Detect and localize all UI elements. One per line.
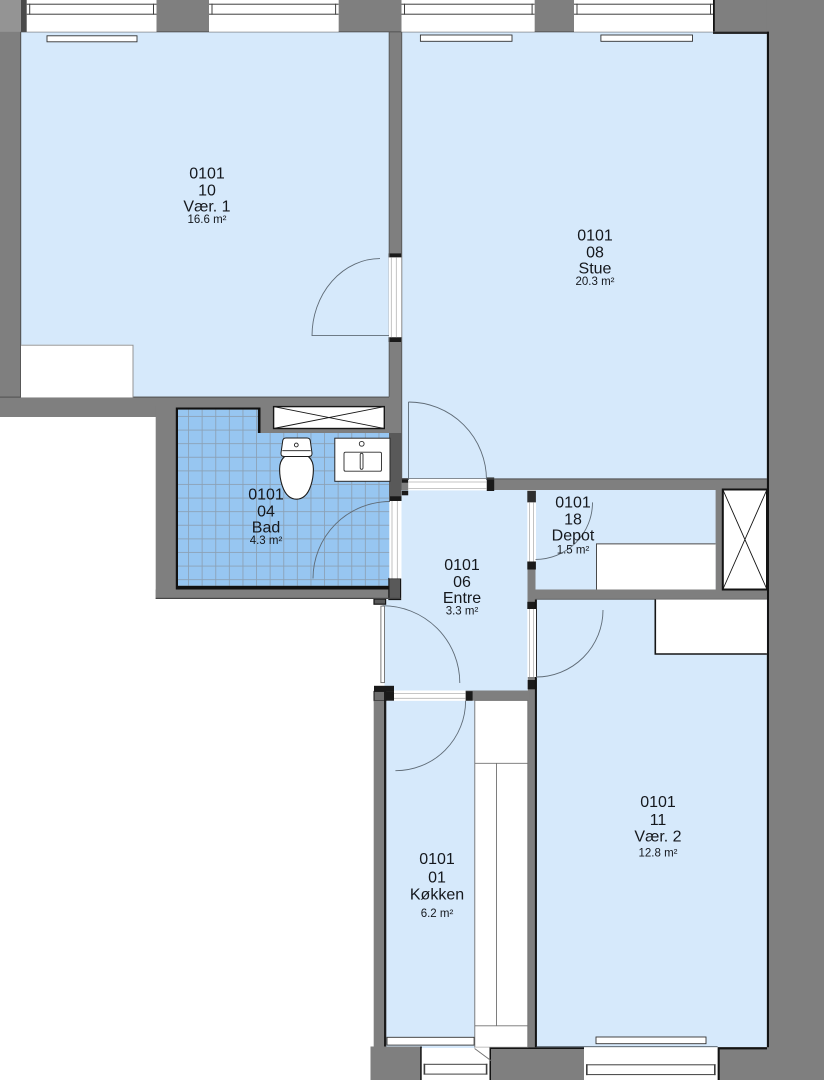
svg-text:0101: 0101 xyxy=(444,557,480,574)
svg-text:0101: 0101 xyxy=(248,487,284,504)
svg-text:Vær. 1: Vær. 1 xyxy=(183,198,230,215)
svg-text:Vær. 2: Vær. 2 xyxy=(634,829,681,846)
svg-text:Depot: Depot xyxy=(552,528,595,545)
svg-text:1.5 m²: 1.5 m² xyxy=(557,544,590,556)
svg-text:08: 08 xyxy=(586,245,604,262)
svg-text:12.8 m²: 12.8 m² xyxy=(639,848,678,860)
svg-text:0101: 0101 xyxy=(640,794,676,811)
svg-text:0101: 0101 xyxy=(555,495,591,512)
svg-text:0101: 0101 xyxy=(419,851,455,868)
svg-text:6.2 m²: 6.2 m² xyxy=(421,908,454,920)
svg-text:0101: 0101 xyxy=(577,228,613,245)
svg-text:11: 11 xyxy=(650,812,667,829)
svg-text:16.6 m²: 16.6 m² xyxy=(188,214,227,226)
svg-text:01: 01 xyxy=(428,870,446,887)
svg-text:Bad: Bad xyxy=(252,520,280,537)
svg-text:10: 10 xyxy=(198,182,216,199)
svg-text:Stue: Stue xyxy=(579,261,612,278)
svg-text:Entre: Entre xyxy=(443,590,481,607)
svg-text:20.3 m²: 20.3 m² xyxy=(576,276,615,288)
svg-text:4.3 m²: 4.3 m² xyxy=(250,535,283,547)
svg-text:06: 06 xyxy=(453,574,471,591)
svg-text:3.3 m²: 3.3 m² xyxy=(446,606,479,618)
svg-text:Køkken: Køkken xyxy=(410,887,464,904)
svg-text:18: 18 xyxy=(564,512,582,529)
svg-text:04: 04 xyxy=(257,504,275,521)
svg-text:0101: 0101 xyxy=(189,165,225,182)
